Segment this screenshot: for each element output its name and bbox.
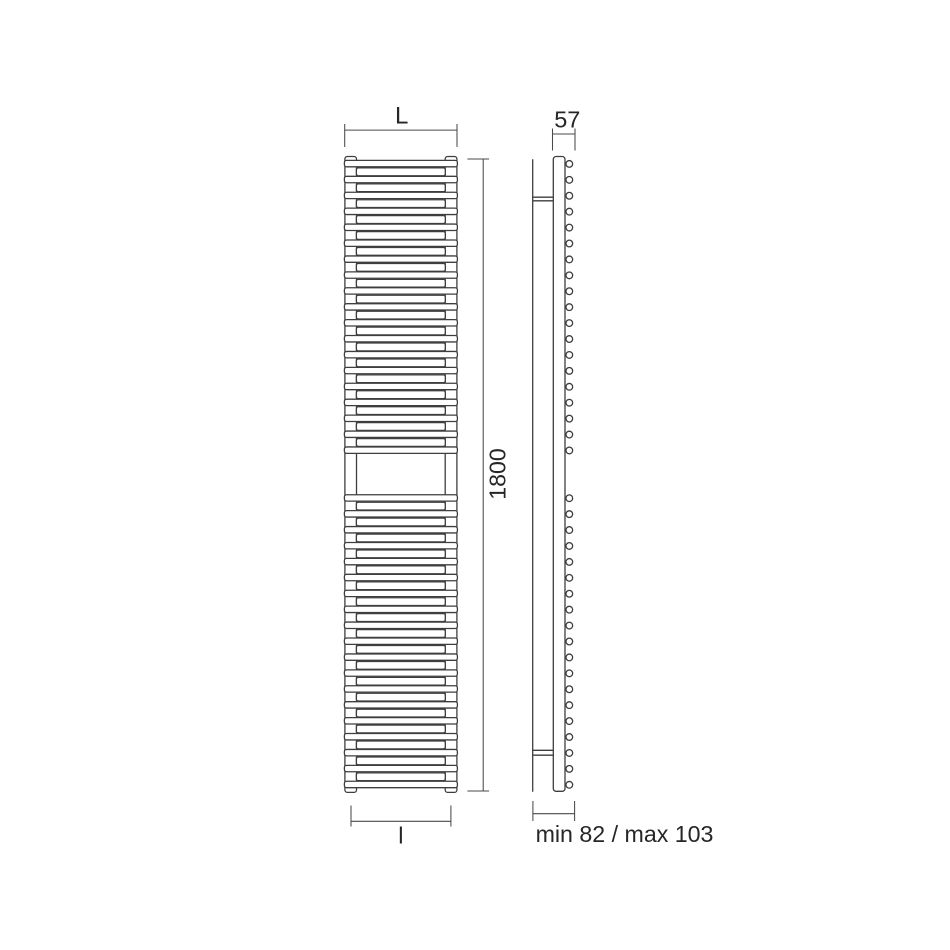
svg-text:min 82 / max 103: min 82 / max 103 [536, 821, 714, 847]
svg-text:L: L [395, 103, 408, 130]
svg-text:57: 57 [554, 106, 580, 132]
svg-text:l: l [398, 823, 403, 849]
svg-text:1800: 1800 [485, 448, 511, 500]
